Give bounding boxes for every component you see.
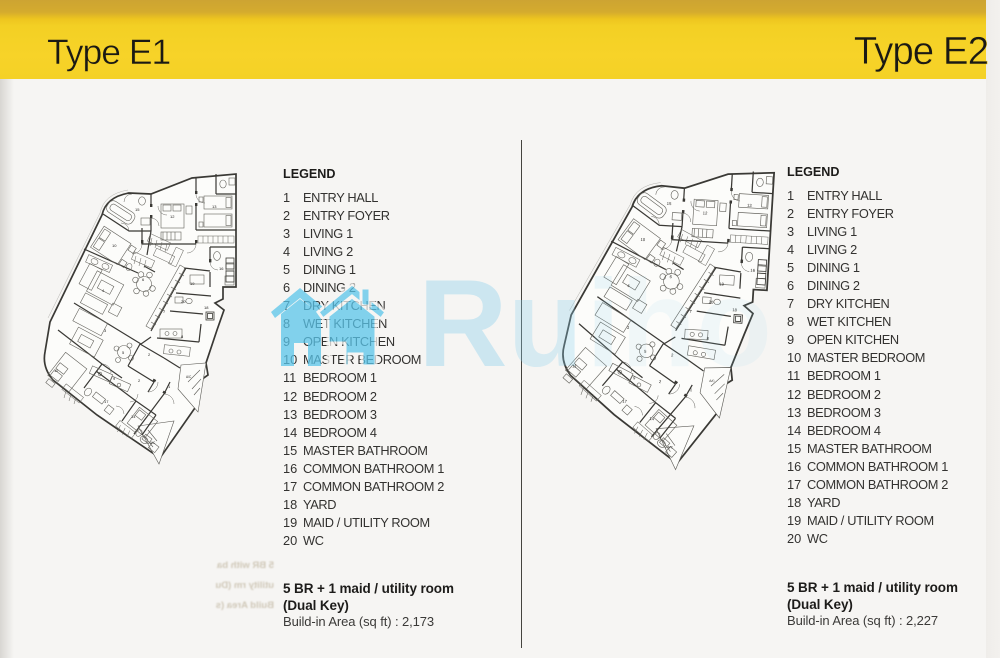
svg-text:i: i (586, 255, 620, 390)
svg-text:u: u (508, 255, 584, 390)
svg-text:home: home (621, 255, 771, 390)
svg-text:R: R (418, 255, 508, 390)
